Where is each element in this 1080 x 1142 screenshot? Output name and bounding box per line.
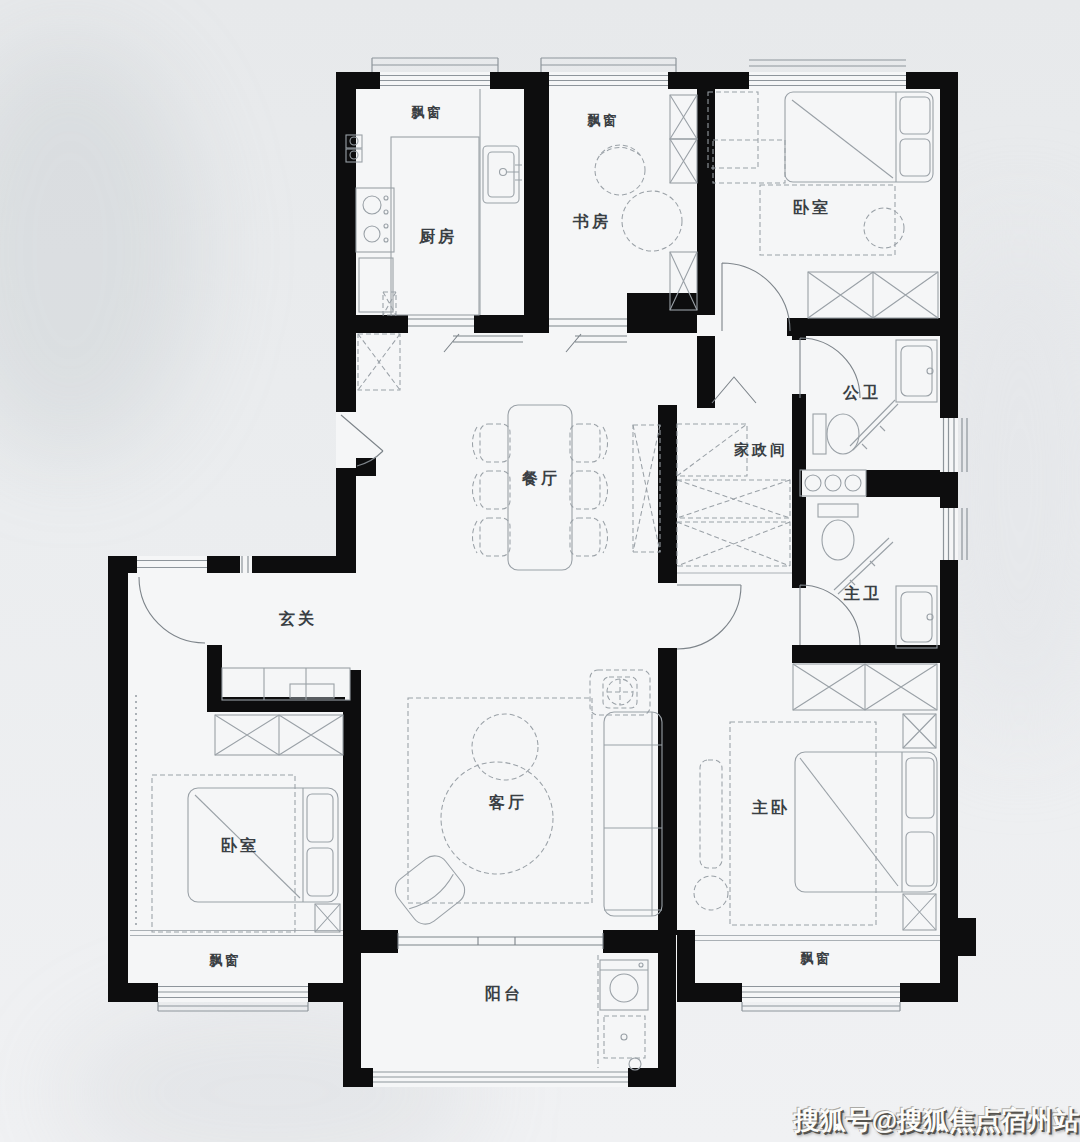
room-label-dining: 餐厅 <box>521 470 560 487</box>
room-label-bedroom-left: 卧室 <box>221 836 259 854</box>
watermark: 搜狐号@搜狐焦点宿州站 <box>794 1103 1079 1138</box>
bay-window-label: 飘窗 <box>800 951 832 966</box>
room-label-study: 书房 <box>572 212 611 230</box>
room-label-master-bath: 主卫 <box>843 584 882 602</box>
room-label-balcony: 阳台 <box>485 985 523 1002</box>
room-label-kitchen: 厨房 <box>418 227 457 245</box>
floorplan-page: { "scene": { "colors": { "bg-top": "#e7e… <box>0 0 1080 1142</box>
room-label-bedroom-top: 卧室 <box>793 198 831 216</box>
room-label-public-bath: 公卫 <box>842 384 881 401</box>
room-label-living: 客厅 <box>488 793 527 811</box>
room-label-foyer: 玄关 <box>278 609 317 627</box>
bay-window-label: 飘窗 <box>209 953 241 968</box>
room-label-utility: 家政间 <box>734 441 788 458</box>
floor-plan: 飘窗 飘窗 厨房 书房 卧室 公卫 家政间 主卫 餐厅 玄关 卧室 客厅 主卧 … <box>0 0 1080 1142</box>
room-label-master-bedroom: 主卧 <box>751 798 790 816</box>
bay-window-label: 飘窗 <box>411 105 443 120</box>
bay-window-label: 飘窗 <box>587 113 619 128</box>
